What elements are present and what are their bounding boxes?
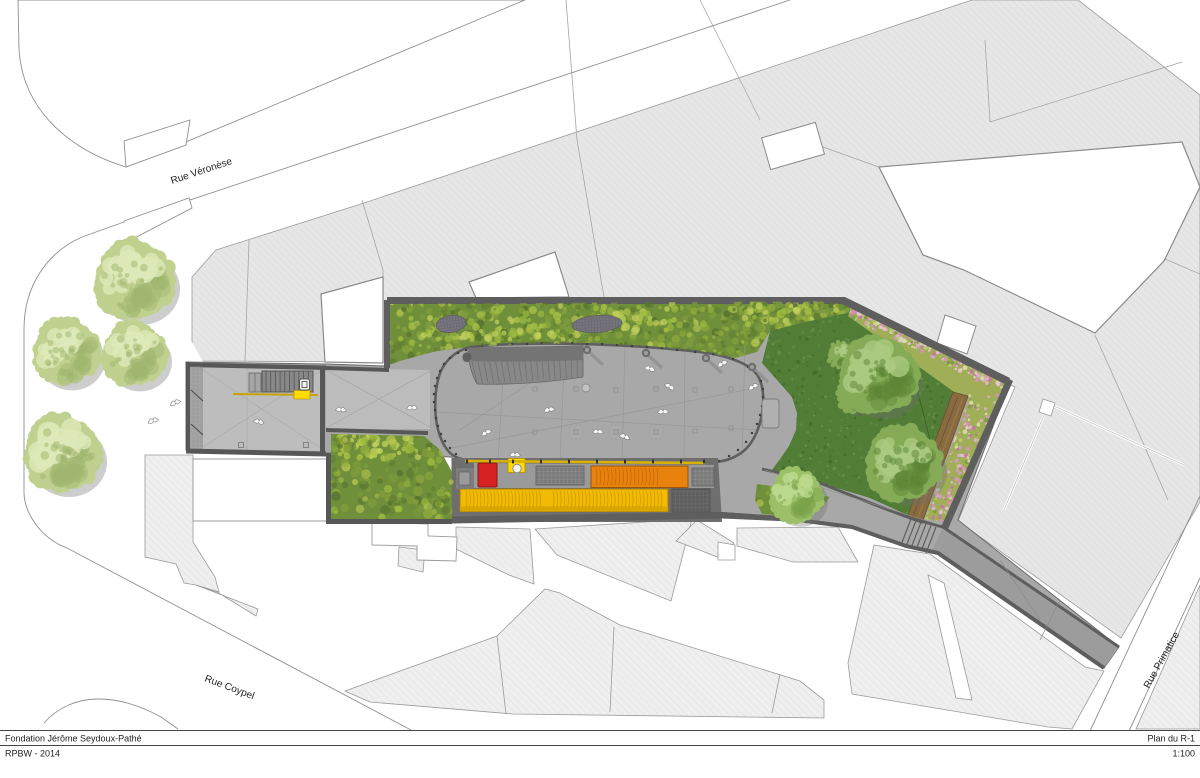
svg-text:RPBW - 2014: RPBW - 2014 <box>5 749 60 759</box>
svg-text:1:100: 1:100 <box>1172 749 1195 759</box>
svg-text:Fondation Jérôme Seydoux-Pathé: Fondation Jérôme Seydoux-Pathé <box>5 734 142 744</box>
svg-text:Plan du R-1: Plan du R-1 <box>1147 734 1195 744</box>
